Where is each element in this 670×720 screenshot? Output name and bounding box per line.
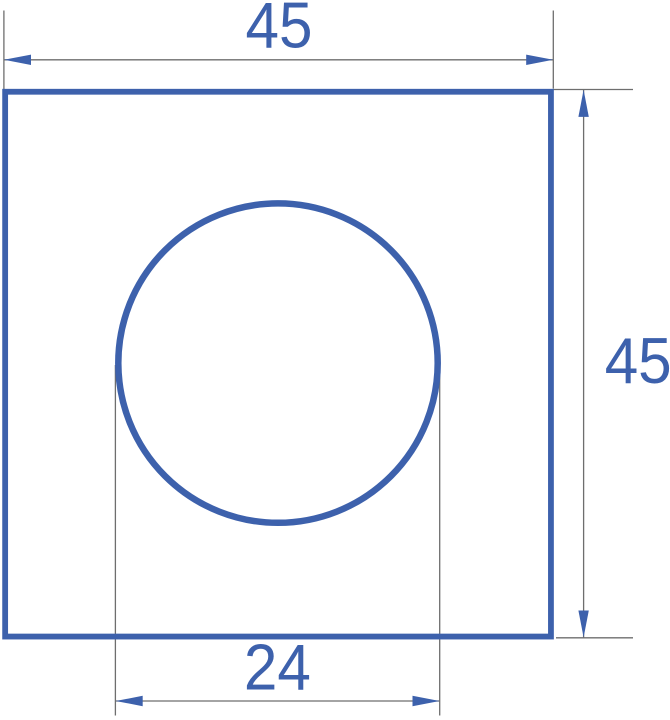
svg-text:45: 45 bbox=[246, 0, 313, 62]
svg-text:24: 24 bbox=[244, 631, 311, 704]
svg-text:45: 45 bbox=[605, 324, 670, 397]
